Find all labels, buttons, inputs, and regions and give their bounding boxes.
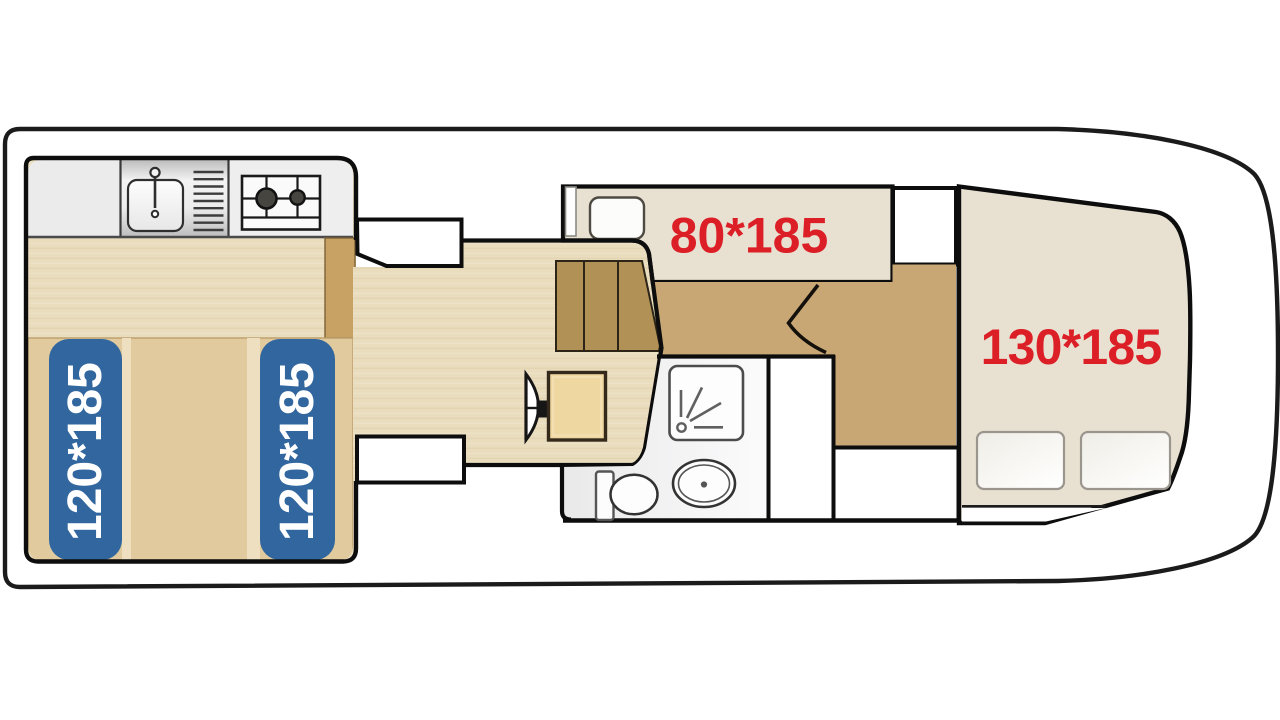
svg-text:130*185: 130*185 [981,319,1162,375]
svg-text:120*185: 120*185 [59,362,112,541]
svg-text:80*185: 80*185 [670,208,829,264]
svg-text:120*185: 120*185 [271,362,324,541]
